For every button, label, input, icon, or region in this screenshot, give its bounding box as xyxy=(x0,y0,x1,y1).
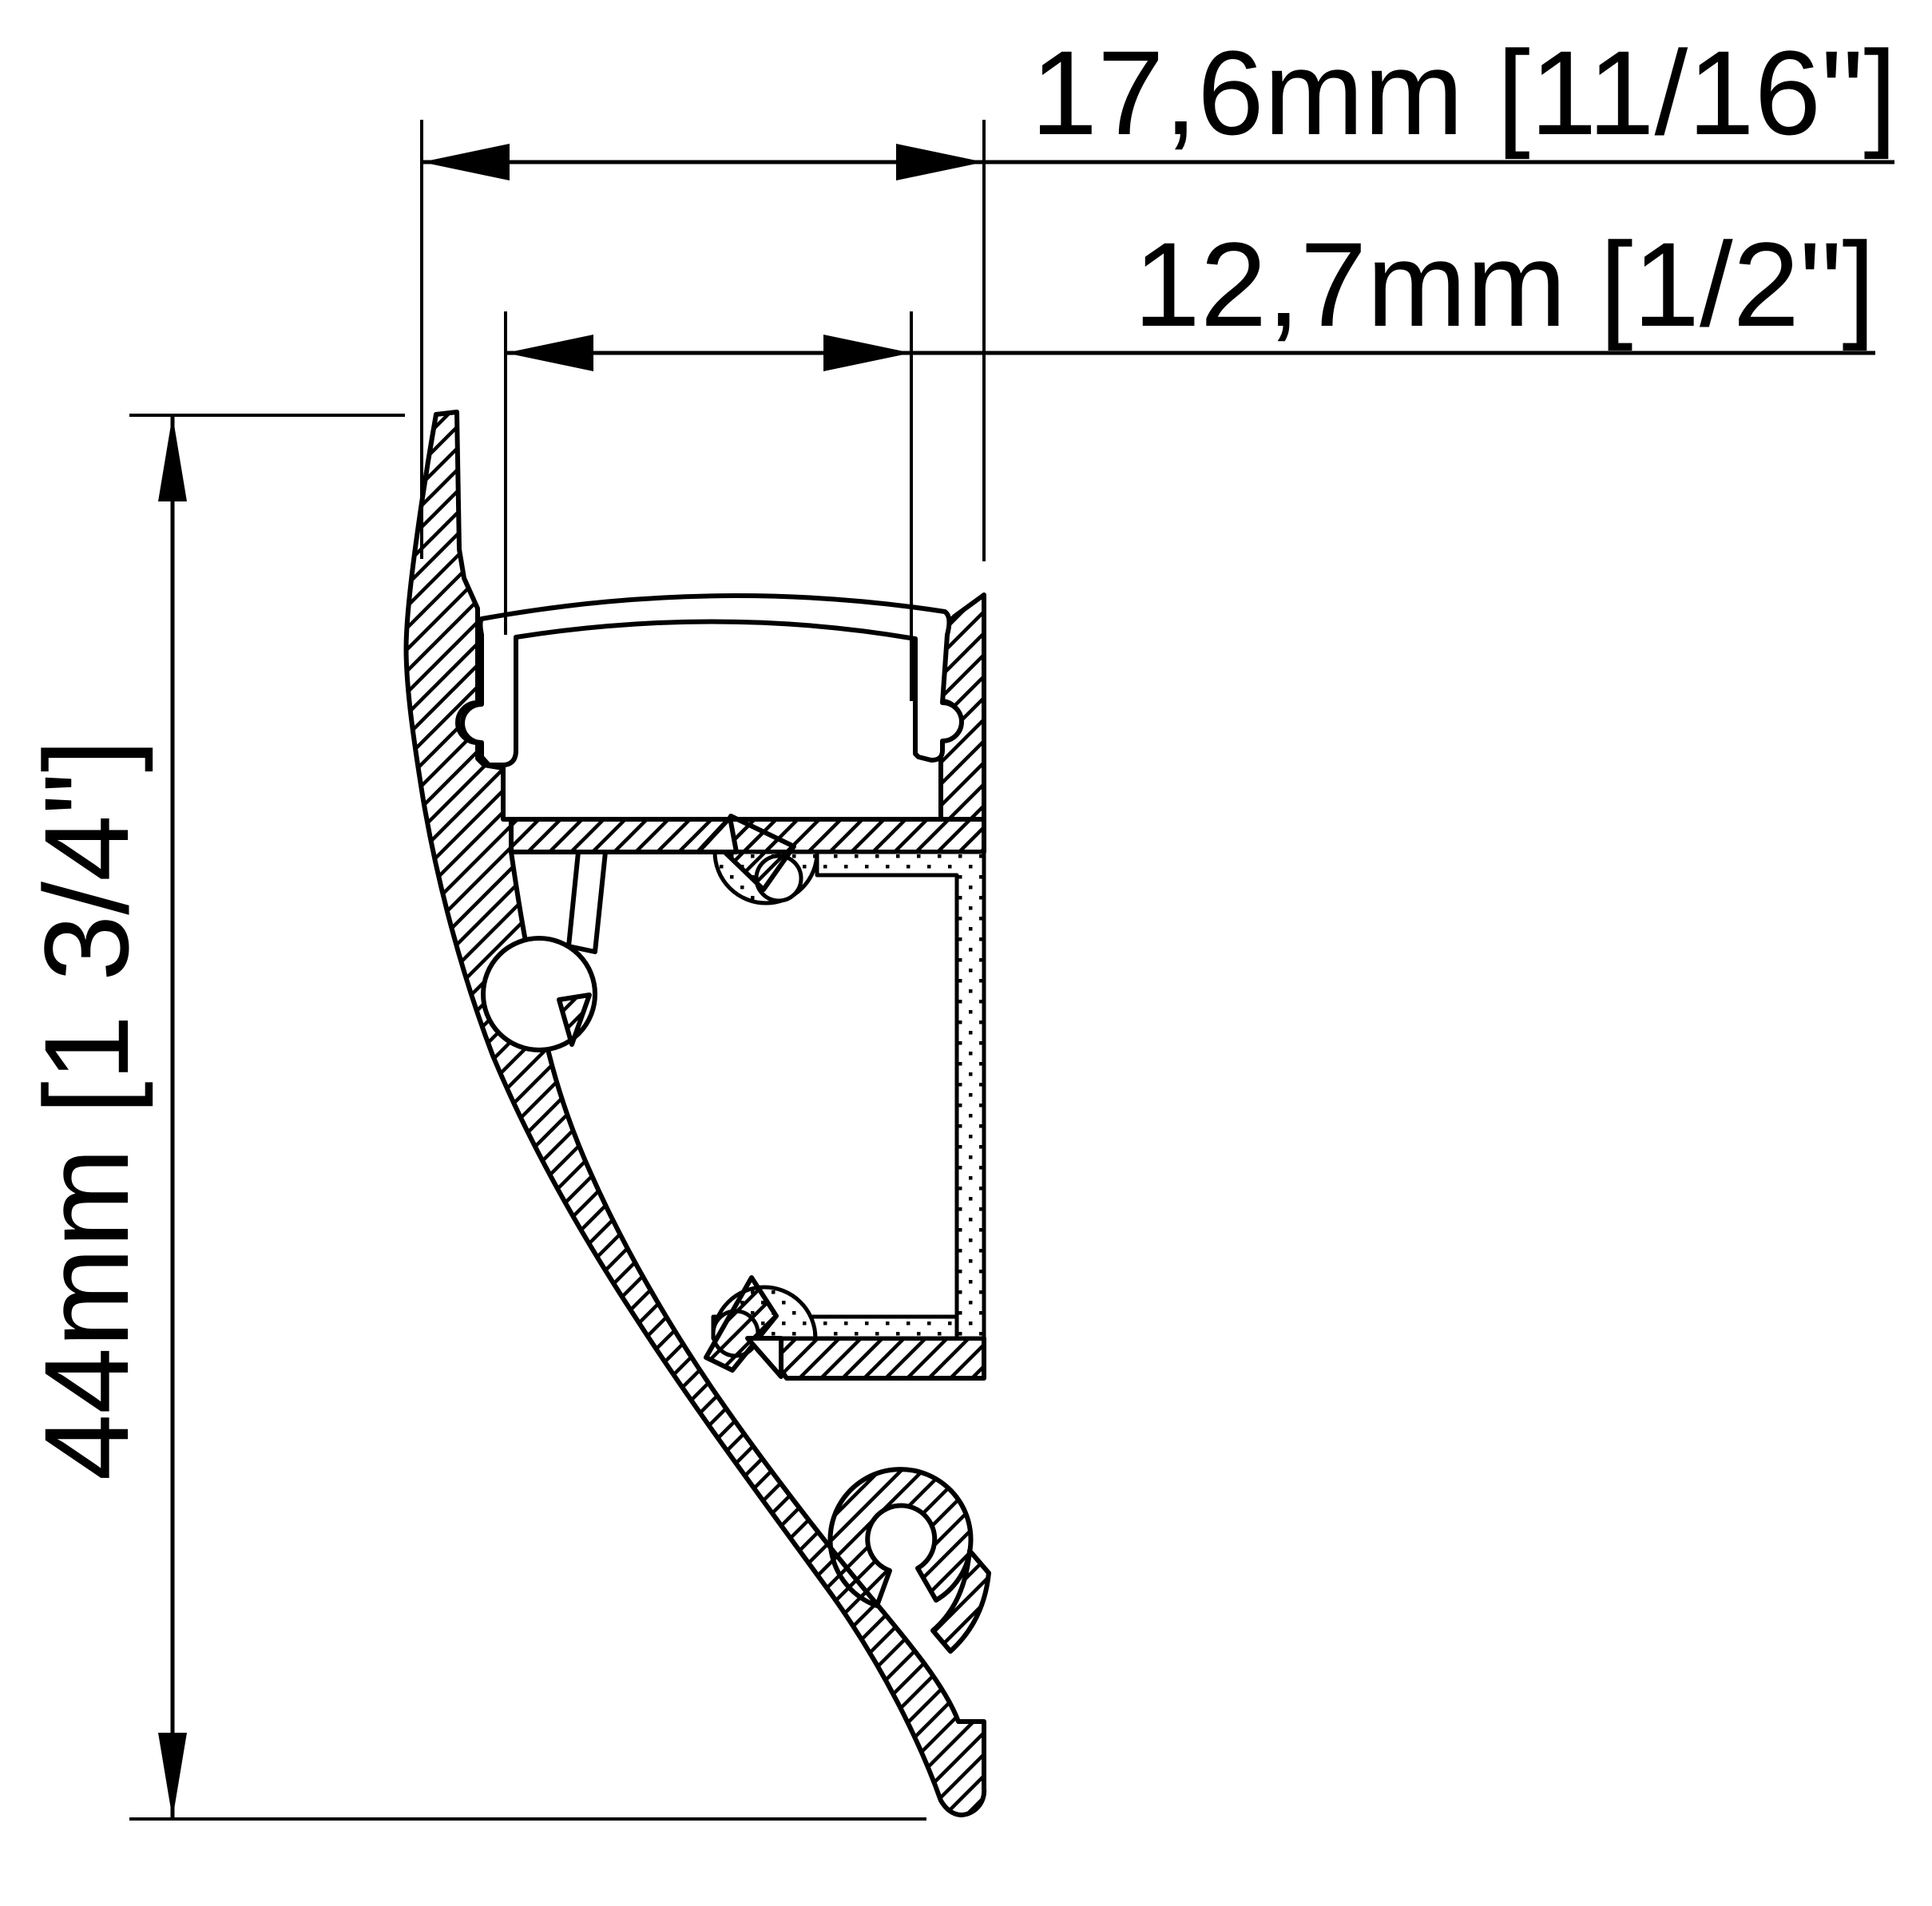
profile-cross-section-drawing: 17,6mm [11/16"] 12,7mm [1/2"] 44mm [1 3/… xyxy=(0,0,1932,1906)
cavity-bottom-plate xyxy=(759,1338,984,1378)
dim-label-width-inner: 12,7mm [1/2"] xyxy=(1133,217,1875,351)
dim-label-height-overall: 44mm [1 3/4"] xyxy=(19,739,153,1481)
technical-drawing-page: 17,6mm [11/16"] 12,7mm [1/2"] 44mm [1 3/… xyxy=(0,0,1932,1906)
dim-label-width-overall: 17,6mm [11/16"] xyxy=(1031,26,1897,160)
